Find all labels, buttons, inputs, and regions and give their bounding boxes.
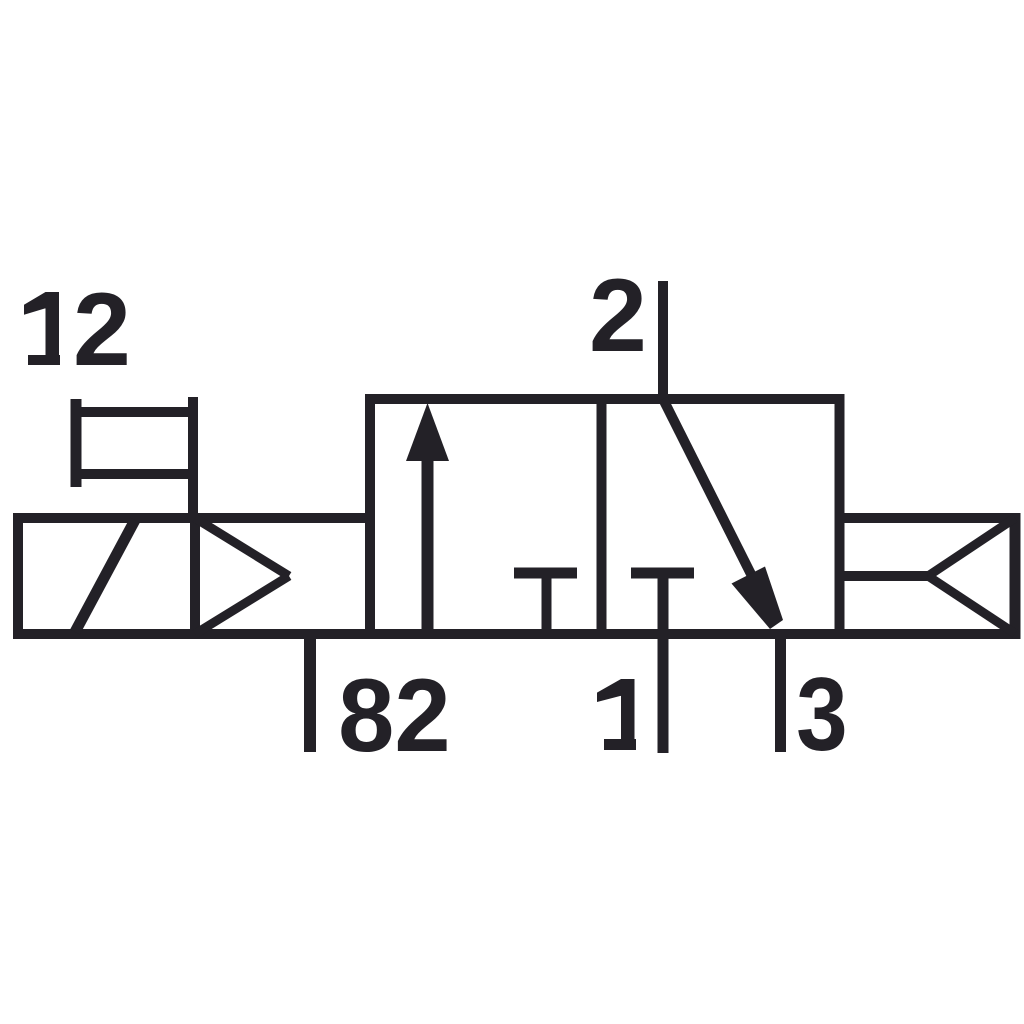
svg-text:3: 3 [796,656,847,772]
svg-text:82: 82 [338,657,450,774]
svg-text:2: 2 [589,258,647,374]
svg-text:2: 2 [73,272,131,388]
